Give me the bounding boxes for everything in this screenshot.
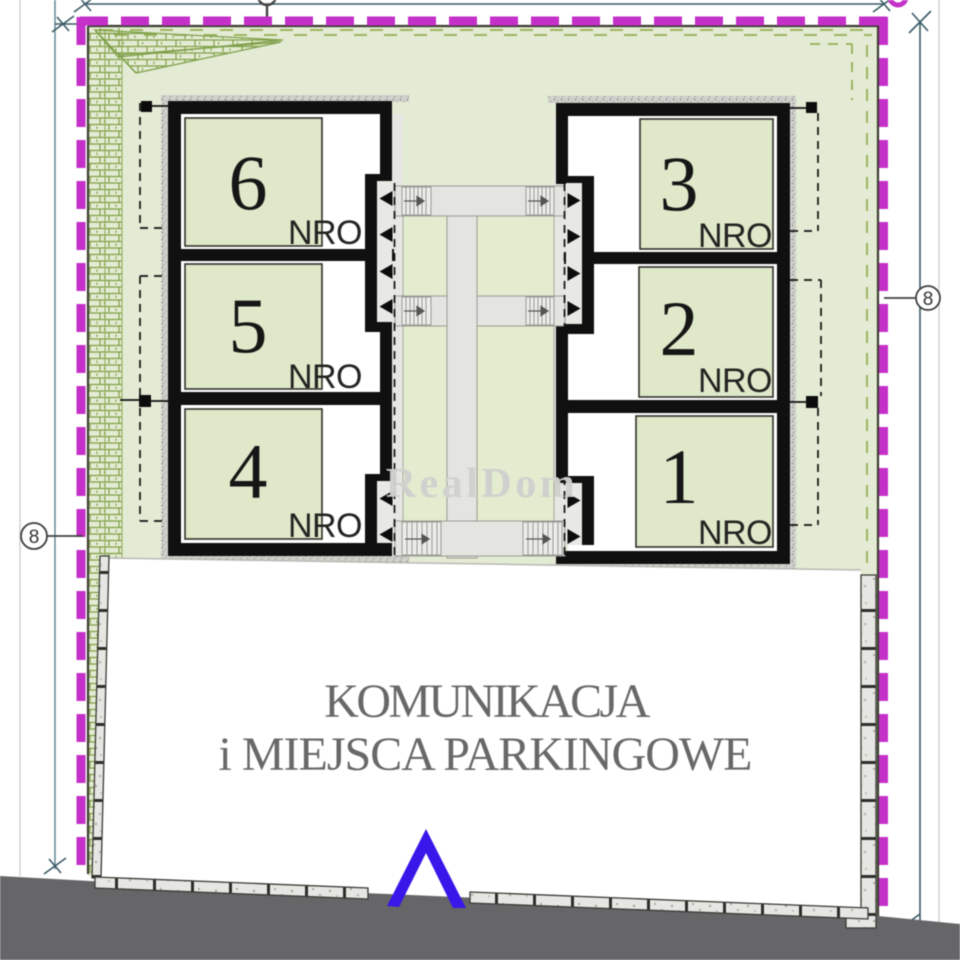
svg-text:RealDom: RealDom — [386, 461, 578, 507]
svg-text:1: 1 — [660, 433, 699, 520]
svg-text:3: 3 — [660, 140, 699, 227]
svg-text:NRO: NRO — [698, 514, 772, 552]
svg-text:NRO: NRO — [288, 358, 362, 396]
svg-text:NRO: NRO — [698, 362, 772, 400]
svg-text:5: 5 — [229, 282, 268, 369]
svg-text:i MIEJSCA PARKINGOWE: i MIEJSCA PARKINGOWE — [219, 728, 752, 781]
svg-text:KOMUNIKACJA: KOMUNIKACJA — [324, 675, 650, 728]
svg-text:8: 8 — [923, 289, 934, 310]
svg-text:6: 6 — [229, 139, 268, 226]
svg-text:NRO: NRO — [288, 507, 362, 545]
svg-text:2: 2 — [660, 285, 699, 372]
svg-text:8: 8 — [29, 527, 40, 548]
svg-text:NRO: NRO — [288, 214, 362, 252]
svg-text:NRO: NRO — [698, 217, 772, 255]
svg-text:4: 4 — [229, 428, 268, 515]
